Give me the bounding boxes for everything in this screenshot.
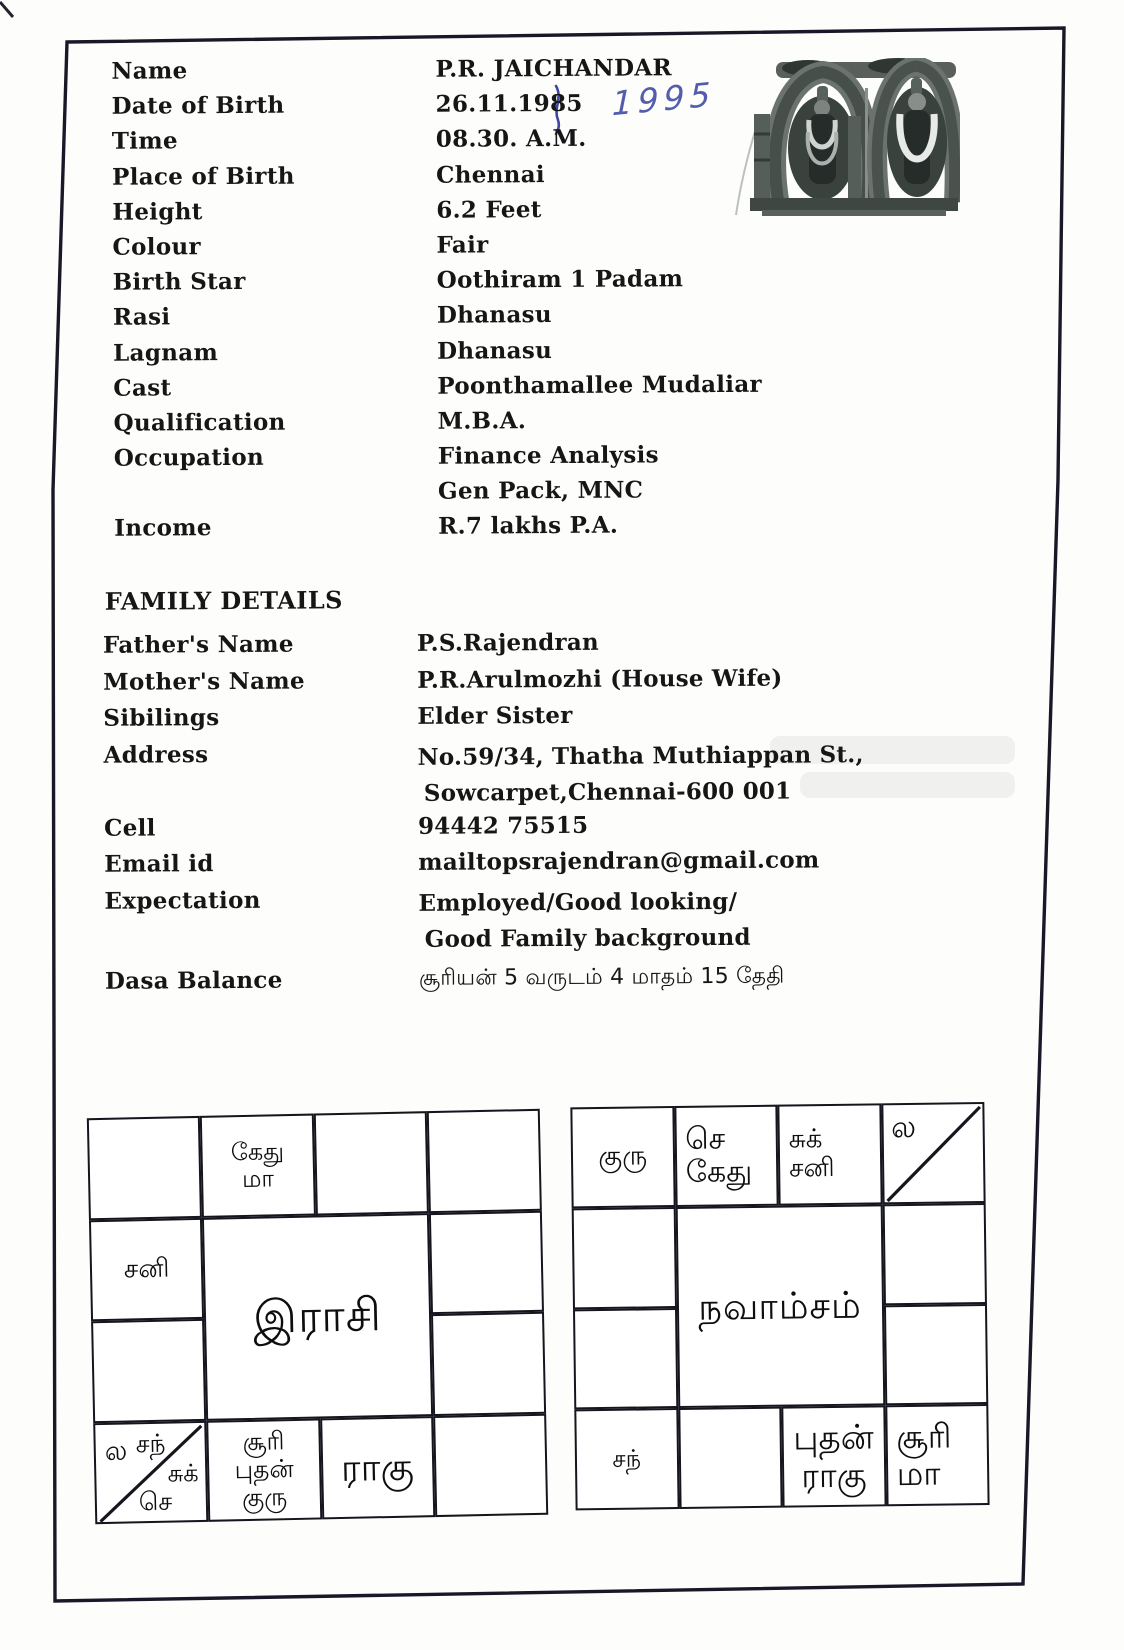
field-label: Occupation — [114, 443, 438, 472]
field-row-dasa: Dasa Balanceசூரியன் 5 வருடம் 4 மாதம் 15 … — [105, 962, 905, 1003]
field-value: M.B.A. — [437, 407, 526, 435]
expectation-line-1: Employed/Good looking/ — [418, 883, 750, 922]
field-label: Place of Birth — [112, 161, 436, 190]
field-row: Date of Birth26.11.1985 — [112, 88, 852, 128]
rasi-cell-r4c2: சூரி புதன் குரு — [206, 1418, 321, 1522]
address-line-2: Sowcarpet,Chennai-600 001 — [424, 773, 864, 812]
nav-cell-r2c1 — [572, 1207, 677, 1309]
scanned-biodata-page: 1995 NameP.R. JAICHANDAR Date of Birth26… — [0, 0, 1124, 1650]
field-label: Cast — [113, 372, 437, 401]
field-label: Qualification — [113, 408, 437, 437]
nav-diag-la: ல — [891, 1113, 916, 1143]
field-label: Lagnam — [113, 337, 437, 366]
nav-cell-r1c4-lagnam: ல — [881, 1102, 986, 1204]
field-value: Gen Pack, MNC — [438, 477, 643, 505]
nav-cell-r4c2 — [678, 1407, 783, 1509]
field-row: OccupationFinance Analysis — [114, 440, 854, 480]
field-row: Gen Pack, MNC — [114, 475, 854, 515]
rasi-diag-la: ல — [105, 1437, 128, 1464]
field-row: Height6.2 Feet — [112, 194, 852, 234]
field-value: P.R. JAICHANDAR — [435, 54, 672, 82]
field-row: Place of BirthChennai — [112, 159, 852, 199]
nav-cell-r2c4 — [882, 1203, 987, 1305]
field-label: Cell — [104, 812, 418, 841]
nav-cell-r4c4: சூரி மா — [885, 1404, 990, 1506]
rasi-cell-r2c4 — [429, 1210, 544, 1314]
field-label — [114, 499, 438, 501]
nav-cell-r4c1: சந் — [574, 1408, 679, 1510]
field-value: Chennai — [436, 161, 545, 189]
field-row: Time08.30. A.M. — [112, 124, 852, 164]
field-value: mailtopsrajendran@gmail.com — [418, 846, 819, 875]
field-row: SibilingsElder Sister — [103, 700, 903, 741]
field-value: Oothiram 1 Padam — [437, 265, 684, 294]
rasi-diag-suk: சுக் — [167, 1461, 199, 1486]
rasi-chart: கேது மா சனி இராசி ல சந் சுக் செ சூரி புத… — [87, 1109, 548, 1524]
field-label: Address — [104, 739, 418, 768]
rasi-cell-r1c4 — [427, 1109, 542, 1213]
field-value: 26.11.1985 — [436, 90, 583, 118]
navamsam-chart-title: நவாம்சம் — [675, 1204, 885, 1408]
field-row: Cell94442 75515 — [104, 809, 904, 850]
rasi-cell-r4c1-lagnam: ல சந் சுக் செ — [93, 1420, 208, 1524]
field-label: Email id — [104, 849, 418, 878]
personal-details-section: NameP.R. JAICHANDAR Date of Birth26.11.1… — [111, 53, 854, 550]
field-label: Height — [112, 196, 436, 225]
field-value: Fair — [436, 231, 488, 258]
rasi-cell-r4c3: ராகு — [320, 1416, 435, 1520]
rasi-cell-r2c1: சனி — [89, 1217, 204, 1321]
navamsam-chart: குரு செ கேது சுக் சனி ல நவாம்சம் சந் புத… — [570, 1102, 989, 1510]
field-value: 94442 75515 — [418, 811, 588, 839]
field-value: Elder Sister — [417, 702, 572, 730]
field-row: CastPoonthamallee Mudaliar — [113, 370, 853, 410]
field-row-address: AddressNo.59/34, Thatha Muthiappan St.,S… — [104, 736, 904, 814]
rasi-cell-r1c1 — [87, 1116, 202, 1220]
field-row: ColourFair — [112, 229, 852, 269]
nav-cell-r1c1: குரு — [570, 1106, 675, 1208]
nav-cell-r1c3: சுக் சனி — [777, 1103, 882, 1205]
field-value: Dhanasu — [437, 337, 552, 365]
field-value: 6.2 Feet — [436, 196, 542, 224]
field-value: Finance Analysis — [438, 441, 659, 469]
field-row: Birth StarOothiram 1 Padam — [113, 264, 853, 304]
rasi-cell-r1c3 — [313, 1111, 428, 1215]
field-label: Expectation — [104, 885, 418, 914]
field-label: Sibilings — [103, 703, 417, 732]
field-label: Colour — [112, 232, 436, 261]
family-details-section: FAMILY DETAILS Father's NameP.S.Rajendra… — [103, 582, 906, 1004]
nav-cell-r3c1 — [573, 1308, 678, 1410]
nav-cell-r1c2: செ கேது — [674, 1105, 779, 1207]
document-content: 1995 NameP.R. JAICHANDAR Date of Birth26… — [0, 0, 1124, 1650]
rasi-cell-r1c2: கேது மா — [200, 1114, 315, 1218]
field-label: Rasi — [113, 302, 437, 331]
field-label: Birth Star — [113, 267, 437, 296]
field-row: IncomeR.7 lakhs P.A. — [114, 511, 854, 551]
field-value: Dhanasu — [437, 301, 552, 329]
field-row: Mother's NameP.R.Arulmozhi (House Wife) — [103, 663, 903, 704]
expectation-line-2: Good Family background — [425, 920, 751, 958]
rasi-diag-se: செ — [139, 1489, 173, 1515]
address-line-1: No.59/34, Thatha Muthiappan St., — [418, 737, 864, 776]
rasi-cell-r3c4 — [431, 1312, 546, 1416]
field-value: Poonthamallee Mudaliar — [437, 370, 762, 399]
field-label: Income — [114, 513, 438, 542]
field-row: LagnamDhanasu — [113, 335, 853, 375]
rasi-cell-r3c1 — [91, 1319, 206, 1423]
field-label: Date of Birth — [112, 91, 436, 120]
field-row: Father's NameP.S.Rajendran — [103, 627, 903, 668]
field-row: QualificationM.B.A. — [113, 405, 853, 445]
rasi-diag-chan: சந் — [135, 1430, 165, 1456]
field-value: 08.30. A.M. — [436, 125, 587, 153]
field-value: P.S.Rajendran — [417, 629, 599, 657]
field-value: R.7 lakhs P.A. — [438, 512, 618, 540]
field-label: Name — [111, 56, 435, 85]
field-row: Email idmailtopsrajendran@gmail.com — [104, 846, 904, 887]
nav-cell-r4c3: புதன் ராகு — [781, 1406, 886, 1508]
dasa-balance-value: சூரியன் 5 வருடம் 4 மாதம் 15 தேதி — [419, 963, 785, 993]
rasi-cell-r4c4 — [433, 1413, 548, 1517]
field-row: RasiDhanasu — [113, 300, 853, 340]
field-row: NameP.R. JAICHANDAR — [111, 53, 851, 93]
field-value: P.R.Arulmozhi (House Wife) — [417, 664, 782, 693]
field-label: Dasa Balance — [105, 965, 419, 994]
nav-cell-r3c4 — [883, 1303, 988, 1405]
field-label: Time — [112, 126, 436, 155]
rasi-chart-title: இராசி — [202, 1213, 433, 1421]
field-label: Mother's Name — [103, 666, 417, 695]
family-details-heading: FAMILY DETAILS — [105, 582, 903, 616]
field-label: Father's Name — [103, 630, 417, 659]
field-row-expectation: ExpectationEmployed/Good looking/Good Fa… — [104, 882, 904, 960]
